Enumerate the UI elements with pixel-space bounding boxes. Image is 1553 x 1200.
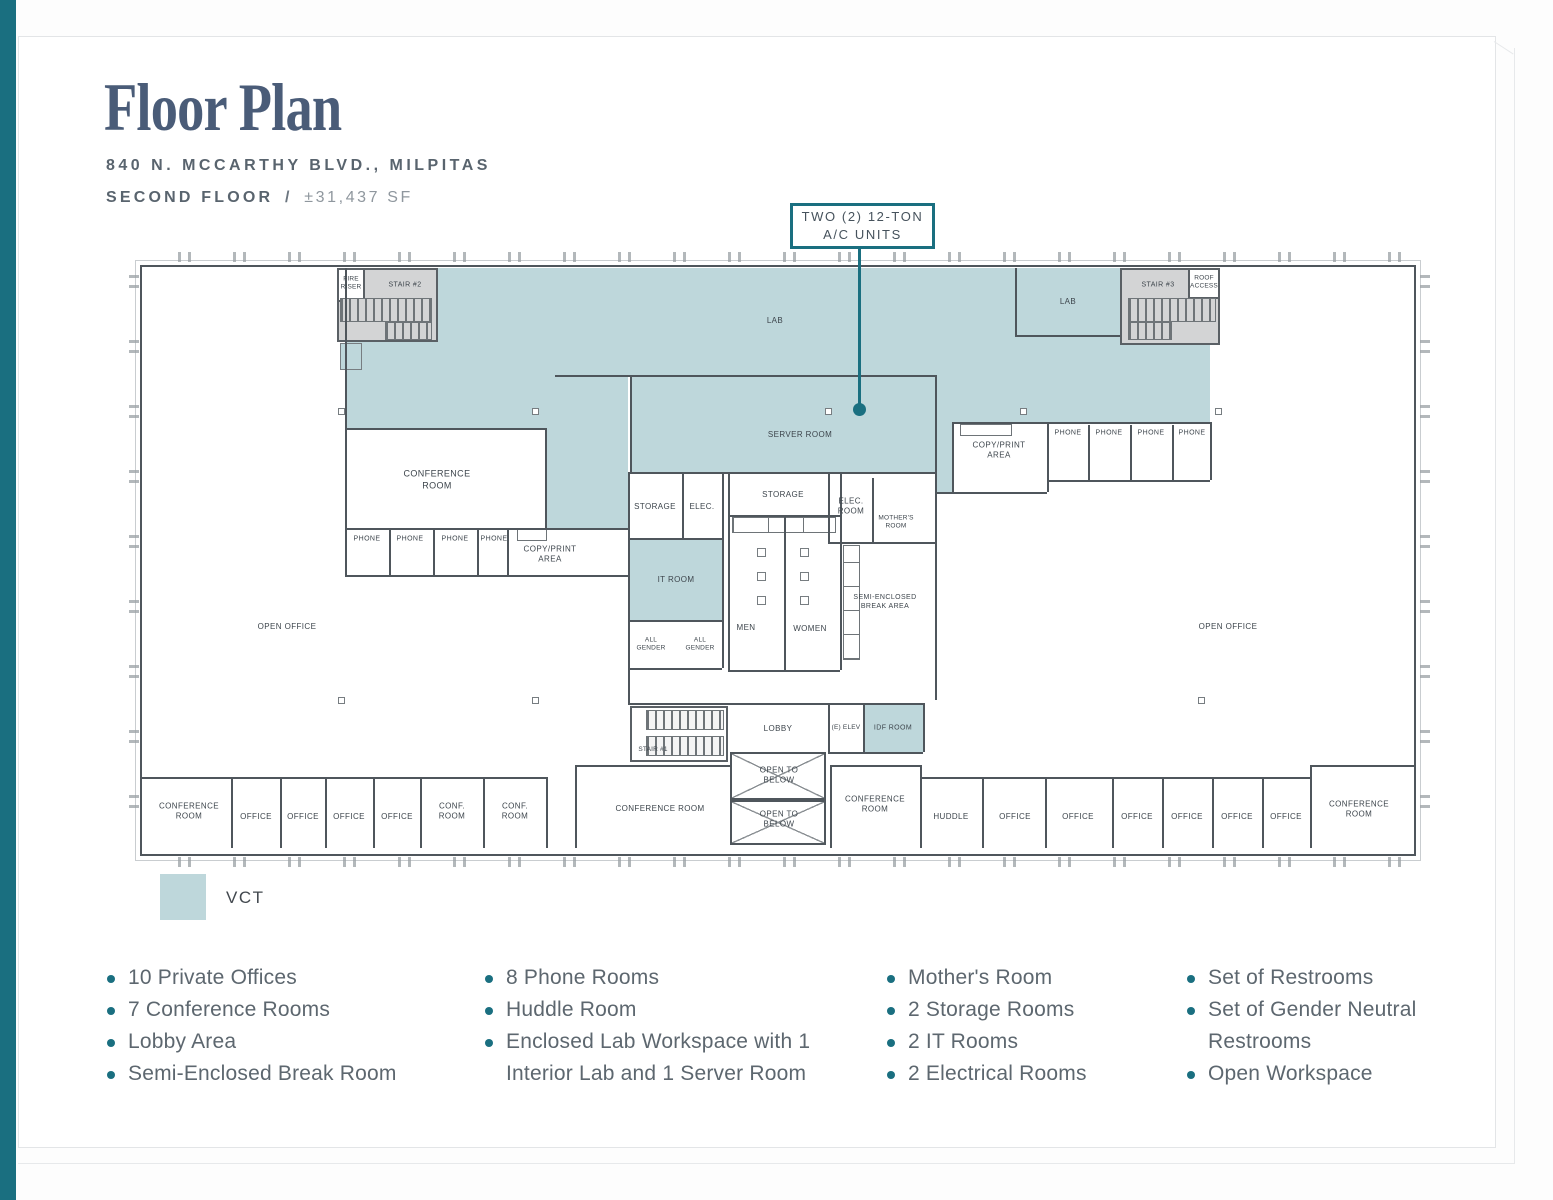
room-label-office: OFFICE [1062, 812, 1094, 822]
room-label-huddle: HUDDLE [933, 812, 968, 822]
room-label-elec: ELEC. [689, 502, 714, 512]
feature-list-4: Set of RestroomsSet of Gender Neutral Re… [1185, 962, 1435, 1090]
room-label-conf-room: CONF. ROOM [495, 802, 535, 823]
room-label-conference-big: CONFERENCE ROOM [615, 804, 705, 814]
feature-item: Semi-Enclosed Break Room [105, 1058, 445, 1090]
room-label-phone: PHONE [1096, 428, 1123, 437]
room-label-men: MEN [737, 623, 756, 633]
room-label-lobby: LOBBY [764, 724, 793, 734]
room-label-open-to-below-upper: OPEN TO BELOW [751, 766, 807, 787]
room-label-mothers-room: MOTHER'S ROOM [872, 515, 920, 532]
callout-leader-line [858, 249, 861, 407]
feature-item: Set of Restrooms [1185, 962, 1435, 994]
room-label-all-gender: ALL GENDER [680, 637, 720, 654]
room-label-office: OFFICE [333, 812, 365, 822]
room-label-office: OFFICE [1221, 812, 1253, 822]
feature-item: Set of Gender Neutral Restrooms [1185, 994, 1435, 1058]
room-label-conference-left: CONFERENCE ROOM [395, 468, 479, 491]
room-label-phone: PHONE [397, 534, 424, 543]
room-label-office: OFFICE [1270, 812, 1302, 822]
room-label-office: OFFICE [287, 812, 319, 822]
room-label-open-office-right: OPEN OFFICE [1199, 622, 1258, 632]
callout-leader-dot [853, 403, 866, 416]
floor-and-area: SECOND FLOOR / ±31,437 SF [106, 189, 413, 207]
feature-item: 10 Private Offices [105, 962, 445, 994]
room-label-stair-1: STAIR #1 [638, 746, 667, 754]
room-label-all-gender: ALL GENDER [631, 637, 671, 654]
window-mullions-bottom [140, 857, 1416, 867]
feature-item: 7 Conference Rooms [105, 994, 445, 1026]
feature-item: Lobby Area [105, 1026, 445, 1058]
room-label-storage-left: STORAGE [634, 502, 676, 512]
room-label-fire-riser: FIRE RISER [337, 276, 365, 293]
room-label-office: OFFICE [1171, 812, 1203, 822]
feature-item: 8 Phone Rooms [483, 962, 838, 994]
page-edge-line [18, 1163, 1515, 1164]
room-label-it-room: IT ROOM [658, 575, 695, 585]
feature-item: Huddle Room [483, 994, 838, 1026]
room-label-copy-print-left: COPY/PRINT AREA [519, 545, 581, 566]
area-value: ±31,437 SF [304, 189, 413, 206]
room-label-break-area: SEMI-ENCLOSED BREAK AREA [845, 593, 925, 611]
room-label-server-room: SERVER ROOM [768, 430, 832, 440]
room-label-women: WOMEN [793, 624, 827, 634]
room-label-conf-room: CONF. ROOM [432, 802, 472, 823]
room-label-phone: PHONE [354, 534, 381, 543]
room-label-stair-3: STAIR #3 [1141, 280, 1174, 289]
window-mullions-left [129, 265, 139, 856]
room-label-office: OFFICE [381, 812, 413, 822]
room-label-conference-bl: CONFERENCE ROOM [149, 802, 229, 823]
room-label-phone: PHONE [1138, 428, 1165, 437]
room-label-phone: PHONE [1179, 428, 1206, 437]
page-edge-line [1514, 48, 1515, 1163]
vct-legend-label: VCT [226, 888, 265, 908]
room-label-lab-left: LAB [767, 316, 783, 326]
accent-sidebar [0, 0, 16, 1200]
separator: / [281, 189, 297, 206]
page-title: Floor Plan [104, 68, 341, 147]
window-mullions-right [1420, 265, 1430, 856]
room-label-roof-access: ROOF ACCESS [1187, 275, 1221, 292]
room-label-open-to-below-lower: OPEN TO BELOW [751, 810, 807, 831]
room-label-phone: PHONE [442, 534, 469, 543]
feature-item: Mother's Room [885, 962, 1145, 994]
room-label-conference-center: CONFERENCE ROOM [835, 795, 915, 816]
room-label-office: OFFICE [240, 812, 272, 822]
page-corner-line [1494, 41, 1514, 54]
property-address: 840 N. MCCARTHY BLVD., MILPITAS [106, 157, 491, 175]
room-label-phone: PHONE [1055, 428, 1082, 437]
feature-item: Enclosed Lab Workspace with 1 Interior L… [483, 1026, 838, 1090]
ac-units-callout: TWO (2) 12-TON A/C UNITS [790, 203, 935, 249]
vct-legend-swatch [160, 874, 206, 920]
room-label-office: OFFICE [999, 812, 1031, 822]
room-label-storage-mid: STORAGE [762, 490, 804, 500]
room-label-open-office-left: OPEN OFFICE [258, 622, 317, 632]
room-label-phone: PHONE [481, 534, 508, 543]
room-label-elevator: (E) ELEV [832, 724, 861, 732]
feature-item: 2 IT Rooms [885, 1026, 1145, 1058]
room-label-idf-room: IDF ROOM [874, 723, 912, 732]
feature-list-2: 8 Phone RoomsHuddle RoomEnclosed Lab Wor… [483, 962, 838, 1090]
room-label-elec-room: ELEC. ROOM [831, 497, 871, 518]
floor-label: SECOND FLOOR [106, 189, 273, 206]
callout-line2: A/C UNITS [823, 226, 902, 244]
floor-plan-page: { "header": { "title": "Floor Plan", "ad… [0, 0, 1553, 1200]
window-mullions-top [140, 252, 1416, 262]
room-label-copy-print-right: COPY/PRINT AREA [968, 441, 1030, 462]
feature-item: 2 Electrical Rooms [885, 1058, 1145, 1090]
callout-line1: TWO (2) 12-TON [802, 208, 924, 226]
room-label-stair-2: STAIR #2 [388, 280, 421, 289]
room-label-lab-right: LAB [1060, 297, 1076, 307]
feature-item: 2 Storage Rooms [885, 994, 1145, 1026]
feature-list-3: Mother's Room2 Storage Rooms2 IT Rooms2 … [885, 962, 1145, 1090]
room-label-conference-br: CONFERENCE ROOM [1319, 800, 1399, 821]
feature-item: Open Workspace [1185, 1058, 1435, 1090]
feature-list-1: 10 Private Offices7 Conference RoomsLobb… [105, 962, 445, 1090]
room-label-office: OFFICE [1121, 812, 1153, 822]
floor-plan: LAB LAB SERVER ROOM STAIR #2 FIRE RISER … [138, 252, 1422, 862]
